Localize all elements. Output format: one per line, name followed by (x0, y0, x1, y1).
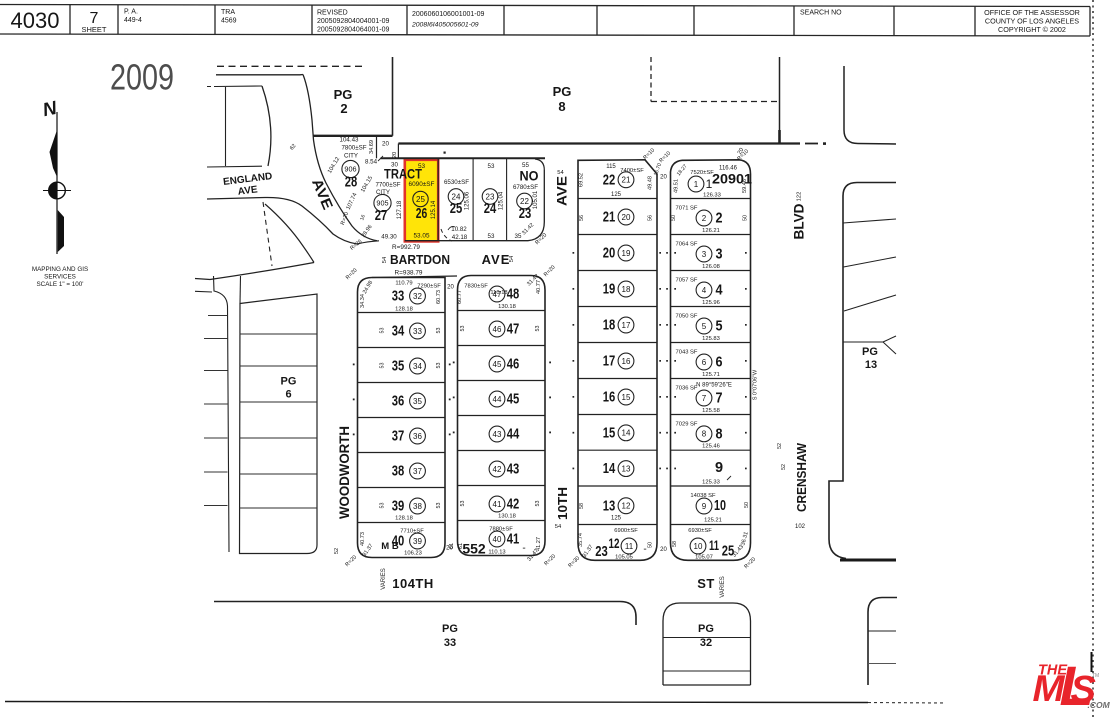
svg-text:110.79: 110.79 (395, 281, 412, 287)
svg-text:32: 32 (700, 637, 712, 649)
svg-text:5: 5 (716, 318, 723, 335)
svg-text:53: 53 (380, 503, 386, 509)
svg-text:54: 54 (557, 170, 564, 176)
svg-text:102: 102 (795, 524, 806, 530)
svg-text:104.43: 104.43 (340, 137, 359, 144)
svg-text:53: 53 (436, 328, 442, 334)
svg-text:7071 SF: 7071 SF (676, 206, 698, 212)
svg-text:105.01: 105.01 (533, 190, 539, 209)
svg-text:15: 15 (603, 424, 616, 441)
svg-text:16: 16 (622, 357, 631, 366)
svg-text:3: 3 (702, 250, 707, 259)
svg-text:R=20: R=20 (543, 553, 557, 567)
svg-text:23: 23 (595, 543, 608, 560)
svg-text:906: 906 (344, 165, 356, 174)
svg-text:R=938.79: R=938.79 (395, 270, 423, 277)
svg-text:8: 8 (558, 99, 565, 114)
svg-text:42: 42 (507, 496, 520, 513)
svg-text:58: 58 (672, 541, 678, 547)
svg-text:6530±SF: 6530±SF (444, 179, 469, 186)
svg-text:125.71: 125.71 (702, 372, 720, 378)
svg-text:53: 53 (488, 233, 495, 240)
svg-text:2: 2 (702, 214, 707, 223)
svg-text:35: 35 (413, 397, 422, 406)
svg-text:24.98: 24.98 (362, 280, 374, 295)
svg-text:9: 9 (702, 502, 707, 511)
svg-text:42.18: 42.18 (452, 234, 468, 241)
svg-text:50: 50 (671, 215, 677, 221)
svg-text:449-4: 449-4 (124, 17, 142, 24)
svg-text:53.05: 53.05 (414, 233, 430, 240)
svg-text:R=26: R=26 (349, 239, 363, 252)
svg-text:13: 13 (865, 359, 877, 371)
svg-text:35: 35 (515, 233, 522, 240)
svg-text:20: 20 (603, 245, 616, 262)
svg-text:15: 15 (622, 393, 631, 402)
svg-text:56: 56 (648, 215, 654, 221)
svg-text:AVE: AVE (482, 252, 511, 267)
svg-text:R=20: R=20 (345, 267, 359, 281)
svg-text:PG: PG (862, 346, 878, 358)
svg-text:1: 1 (694, 180, 699, 189)
svg-text:REVISED: REVISED (317, 10, 348, 17)
svg-text:36.31: 36.31 (740, 531, 749, 546)
svg-text:16: 16 (603, 389, 616, 406)
svg-text:8: 8 (702, 430, 707, 439)
svg-text:126.08: 126.08 (702, 264, 720, 270)
svg-text:7057 SF: 7057 SF (676, 278, 698, 284)
svg-text:CITY: CITY (344, 153, 358, 160)
svg-text:4: 4 (716, 282, 724, 299)
svg-text:12: 12 (622, 502, 631, 511)
svg-text:104TH: 104TH (392, 576, 434, 591)
svg-text:46: 46 (493, 325, 502, 334)
svg-text:6900±SF: 6900±SF (614, 528, 638, 534)
svg-text:125.21: 125.21 (704, 518, 722, 524)
svg-text:17: 17 (603, 353, 616, 370)
svg-text:7: 7 (716, 390, 723, 407)
svg-text:11: 11 (709, 538, 719, 553)
svg-text:2: 2 (716, 210, 723, 227)
svg-text:PG: PG (698, 623, 714, 635)
svg-text:6090±SF: 6090±SF (409, 181, 435, 188)
svg-text:125.96: 125.96 (702, 300, 720, 306)
svg-text:28: 28 (345, 174, 358, 191)
svg-text:53: 53 (436, 363, 442, 369)
svg-text:P. A.: P. A. (124, 9, 138, 16)
svg-text:7290±SF: 7290±SF (417, 284, 441, 290)
svg-text:SEARCH NO: SEARCH NO (800, 10, 842, 17)
svg-text:-: - (522, 543, 525, 554)
svg-text:8: 8 (716, 425, 723, 442)
svg-text:45: 45 (507, 391, 520, 408)
svg-text:M B: M B (381, 541, 399, 552)
svg-text:58: 58 (579, 503, 585, 509)
svg-text:AVE: AVE (308, 177, 335, 213)
svg-text:7: 7 (702, 394, 707, 403)
svg-text:R=20: R=20 (340, 211, 350, 226)
svg-text:38: 38 (392, 463, 405, 480)
svg-text:R=30: R=30 (567, 555, 581, 569)
svg-text:38: 38 (413, 502, 422, 511)
svg-text:34: 34 (413, 362, 422, 371)
svg-text:52: 52 (334, 548, 340, 554)
svg-text:105.07: 105.07 (695, 555, 713, 561)
svg-text:6930±SF: 6930±SF (688, 528, 712, 534)
svg-text:7029 SF: 7029 SF (676, 422, 698, 428)
svg-text:3: 3 (716, 246, 723, 263)
svg-text:2005092804004001-09: 2005092804004001-09 (317, 18, 390, 25)
svg-text:33: 33 (413, 327, 422, 336)
svg-text:53: 53 (535, 326, 541, 332)
svg-text:50: 50 (648, 542, 654, 548)
svg-text:37: 37 (413, 467, 422, 476)
svg-text:52: 52 (781, 464, 787, 470)
svg-text:43: 43 (493, 430, 502, 439)
svg-text:TM: TM (1092, 673, 1099, 679)
svg-text:53: 53 (380, 328, 386, 334)
svg-text:10: 10 (694, 542, 703, 551)
svg-text:20: 20 (392, 152, 398, 158)
svg-text:125.83: 125.83 (702, 336, 720, 342)
svg-text:104.12: 104.12 (327, 156, 341, 174)
svg-text:4030: 4030 (11, 8, 60, 33)
svg-text:42: 42 (493, 465, 502, 474)
svg-text:130.18: 130.18 (498, 304, 516, 310)
svg-text:54: 54 (509, 255, 515, 262)
svg-text:R=10: R=10 (642, 147, 656, 161)
svg-text:40.77: 40.77 (536, 280, 542, 294)
svg-text:7830±SF: 7830±SF (464, 284, 488, 290)
svg-text:35: 35 (392, 358, 405, 375)
svg-text:2: 2 (340, 101, 347, 116)
svg-text:36: 36 (413, 432, 422, 441)
svg-text:125.14: 125.14 (431, 200, 437, 219)
svg-text:107.74: 107.74 (346, 192, 359, 211)
svg-text:48: 48 (507, 286, 520, 303)
svg-text:PG: PG (442, 623, 458, 635)
svg-text:WOODWORTH: WOODWORTH (337, 426, 352, 519)
svg-text:52: 52 (777, 443, 783, 449)
svg-text:S 0°07'06"W: S 0°07'06"W (753, 369, 759, 400)
svg-text:MAPPING AND GIS: MAPPING AND GIS (32, 266, 88, 273)
svg-text:39: 39 (413, 537, 422, 546)
svg-text:44: 44 (493, 395, 502, 404)
svg-text:122: 122 (797, 192, 803, 202)
svg-text:R=20: R=20 (534, 232, 548, 246)
svg-text:ST: ST (697, 576, 715, 591)
svg-text:17: 17 (622, 321, 631, 330)
svg-text:AVE: AVE (237, 184, 258, 197)
svg-text:-: - (643, 544, 646, 555)
svg-text:45: 45 (493, 360, 502, 369)
svg-text:4: 4 (702, 286, 707, 295)
svg-text:56: 56 (579, 215, 585, 221)
svg-text:4569: 4569 (221, 18, 237, 25)
svg-text:104.15: 104.15 (360, 175, 374, 193)
svg-text:20: 20 (382, 141, 389, 148)
svg-text:24: 24 (484, 200, 497, 217)
svg-text:126.21: 126.21 (702, 228, 720, 234)
svg-text:125: 125 (611, 516, 622, 522)
svg-text:50: 50 (744, 502, 750, 508)
svg-text:125.46: 125.46 (702, 444, 720, 450)
svg-text:25: 25 (450, 200, 463, 217)
svg-text:12: 12 (609, 536, 620, 551)
svg-text:34: 34 (392, 323, 405, 340)
svg-text:2006060106001001-09: 2006060106001001-09 (412, 11, 485, 18)
svg-text:31.47: 31.47 (526, 548, 540, 563)
svg-text:125: 125 (611, 192, 622, 198)
svg-text:.COM: .COM (1088, 700, 1111, 710)
svg-text:7520±SF: 7520±SF (690, 170, 714, 176)
svg-text:R=10: R=10 (658, 150, 672, 164)
svg-text:COPYRIGHT © 2002: COPYRIGHT © 2002 (998, 25, 1066, 34)
svg-text:7036 SF: 7036 SF (676, 386, 698, 392)
svg-text:49.48: 49.48 (648, 176, 654, 190)
svg-text:7050 SF: 7050 SF (676, 314, 698, 320)
svg-text:110.18: 110.18 (490, 290, 507, 296)
svg-text:10: 10 (714, 498, 726, 514)
svg-text:7880±SF: 7880±SF (489, 527, 513, 533)
svg-text:128.18: 128.18 (395, 307, 413, 313)
svg-text:21: 21 (622, 176, 631, 185)
svg-text:126.33: 126.33 (703, 193, 721, 199)
svg-text:18: 18 (603, 317, 616, 334)
svg-text:6780±SF: 6780±SF (513, 184, 538, 191)
svg-text:R=20: R=20 (344, 554, 358, 568)
svg-text:23: 23 (519, 205, 532, 222)
svg-text:5: 5 (702, 322, 707, 331)
svg-text:105.05: 105.05 (615, 555, 633, 561)
svg-text:26: 26 (416, 205, 428, 222)
svg-text:28.96: 28.96 (361, 224, 374, 239)
svg-text:19: 19 (622, 249, 631, 258)
svg-text:8.54: 8.54 (365, 159, 378, 166)
svg-text:27: 27 (375, 207, 388, 224)
svg-text:PG: PG (334, 87, 353, 102)
svg-text:VARIES: VARIES (720, 576, 726, 598)
svg-text:60.73: 60.73 (436, 290, 442, 304)
svg-text:49.30: 49.30 (381, 234, 397, 241)
svg-text:33: 33 (444, 637, 456, 649)
svg-text:37: 37 (392, 428, 405, 445)
svg-text:34.34: 34.34 (360, 294, 366, 308)
svg-text:127.18: 127.18 (397, 200, 403, 219)
svg-text:40: 40 (493, 535, 502, 544)
svg-text:TRA: TRA (221, 9, 235, 16)
svg-text:AVE: AVE (555, 176, 570, 206)
svg-text:61: 61 (449, 543, 455, 549)
svg-text:40.73: 40.73 (360, 532, 366, 546)
svg-text:16: 16 (359, 214, 367, 221)
svg-text:6: 6 (716, 354, 723, 371)
svg-text:VARIES: VARIES (381, 568, 387, 590)
svg-text:NO: NO (520, 169, 539, 184)
svg-text:20: 20 (660, 547, 667, 553)
svg-text:2008I6I405005601-09: 2008I6I405005601-09 (411, 22, 479, 29)
svg-text:7064 SF: 7064 SF (676, 242, 698, 248)
svg-text:49.51: 49.51 (674, 179, 680, 193)
svg-text:31.42: 31.42 (521, 222, 535, 236)
svg-text:CRENSHAW: CRENSHAW (794, 442, 809, 512)
svg-text:N 89°59'26"E: N 89°59'26"E (696, 383, 732, 389)
svg-text:32: 32 (413, 292, 422, 301)
svg-text:46: 46 (507, 356, 520, 373)
svg-text:7710±SF: 7710±SF (400, 529, 424, 535)
svg-text:33: 33 (392, 288, 405, 305)
svg-text:7043 SF: 7043 SF (676, 350, 698, 356)
svg-text:SCALE 1" = 100': SCALE 1" = 100' (36, 281, 83, 288)
svg-text:14: 14 (603, 460, 616, 477)
svg-text:14: 14 (622, 429, 631, 438)
svg-text:43: 43 (507, 461, 520, 478)
svg-text:20: 20 (622, 213, 631, 222)
svg-text:2009: 2009 (110, 57, 174, 98)
svg-text:115: 115 (606, 164, 616, 170)
svg-text:13: 13 (603, 497, 616, 514)
svg-text:34.69: 34.69 (369, 140, 375, 154)
svg-text:60.77: 60.77 (457, 290, 463, 304)
svg-text:552: 552 (462, 541, 486, 557)
svg-text:59.46: 59.46 (742, 179, 748, 193)
svg-text:PG: PG (281, 376, 297, 388)
svg-text:53: 53 (460, 326, 466, 332)
svg-text:41: 41 (507, 531, 520, 548)
svg-text:20: 20 (447, 285, 454, 291)
svg-text:125.06: 125.06 (465, 191, 471, 210)
svg-text:44: 44 (507, 426, 520, 443)
svg-text:53: 53 (436, 503, 442, 509)
svg-text:22: 22 (603, 171, 616, 188)
svg-text:2005092804064001-09: 2005092804064001-09 (317, 27, 390, 34)
svg-text:SERVICES: SERVICES (44, 274, 76, 281)
svg-text:25: 25 (722, 543, 735, 560)
svg-text:54: 54 (555, 524, 562, 530)
svg-text:20: 20 (660, 175, 667, 181)
svg-text:53: 53 (488, 163, 495, 170)
svg-text:69.52: 69.52 (579, 173, 585, 187)
svg-text:21: 21 (603, 209, 616, 226)
svg-text:36: 36 (392, 393, 405, 410)
svg-text:9: 9 (715, 460, 723, 476)
svg-text:R=992.79: R=992.79 (392, 244, 420, 251)
svg-text:BLVD: BLVD (792, 203, 807, 239)
svg-text:18: 18 (622, 285, 631, 294)
svg-text:7400±SF: 7400±SF (620, 168, 644, 174)
svg-text:47: 47 (507, 321, 520, 338)
svg-text:35.74: 35.74 (578, 533, 584, 547)
svg-text:6: 6 (702, 358, 707, 367)
svg-text:10.82: 10.82 (451, 226, 467, 233)
svg-text:53: 53 (460, 501, 466, 507)
svg-text:41.27: 41.27 (536, 537, 542, 551)
svg-text:TRACT: TRACT (384, 167, 423, 182)
svg-text:R=20: R=20 (743, 556, 757, 570)
svg-text:53: 53 (380, 363, 386, 369)
svg-text:19: 19 (603, 281, 616, 298)
svg-text:13: 13 (622, 464, 631, 473)
svg-text:130.18: 130.18 (498, 514, 516, 520)
svg-text:62: 62 (289, 143, 298, 152)
svg-text:6: 6 (285, 389, 291, 401)
svg-text:125.58: 125.58 (702, 408, 720, 414)
svg-text:SHEET: SHEET (81, 25, 106, 34)
svg-text:128.18: 128.18 (395, 516, 413, 522)
svg-text:53: 53 (535, 501, 541, 507)
svg-text:10TH: 10TH (555, 487, 570, 520)
svg-text:50: 50 (743, 215, 749, 221)
svg-text:106.23: 106.23 (404, 551, 422, 557)
svg-text:11: 11 (625, 542, 634, 551)
svg-text:25: 25 (416, 195, 425, 204)
svg-text:61: 61 (458, 543, 464, 549)
svg-text:125.33: 125.33 (702, 480, 720, 486)
svg-text:R=20: R=20 (543, 264, 557, 278)
svg-text:41: 41 (493, 500, 502, 509)
svg-text:39: 39 (392, 498, 405, 515)
svg-text:18.27: 18.27 (676, 163, 689, 177)
svg-text:7700±SF: 7700±SF (375, 182, 400, 189)
svg-text:PG: PG (553, 84, 572, 99)
svg-text:7800±SF: 7800±SF (341, 145, 366, 152)
svg-text:110.13: 110.13 (488, 550, 505, 556)
svg-text:125.04: 125.04 (499, 191, 505, 210)
svg-text:BARTDON: BARTDON (390, 252, 450, 267)
svg-text:54: 54 (382, 256, 388, 263)
